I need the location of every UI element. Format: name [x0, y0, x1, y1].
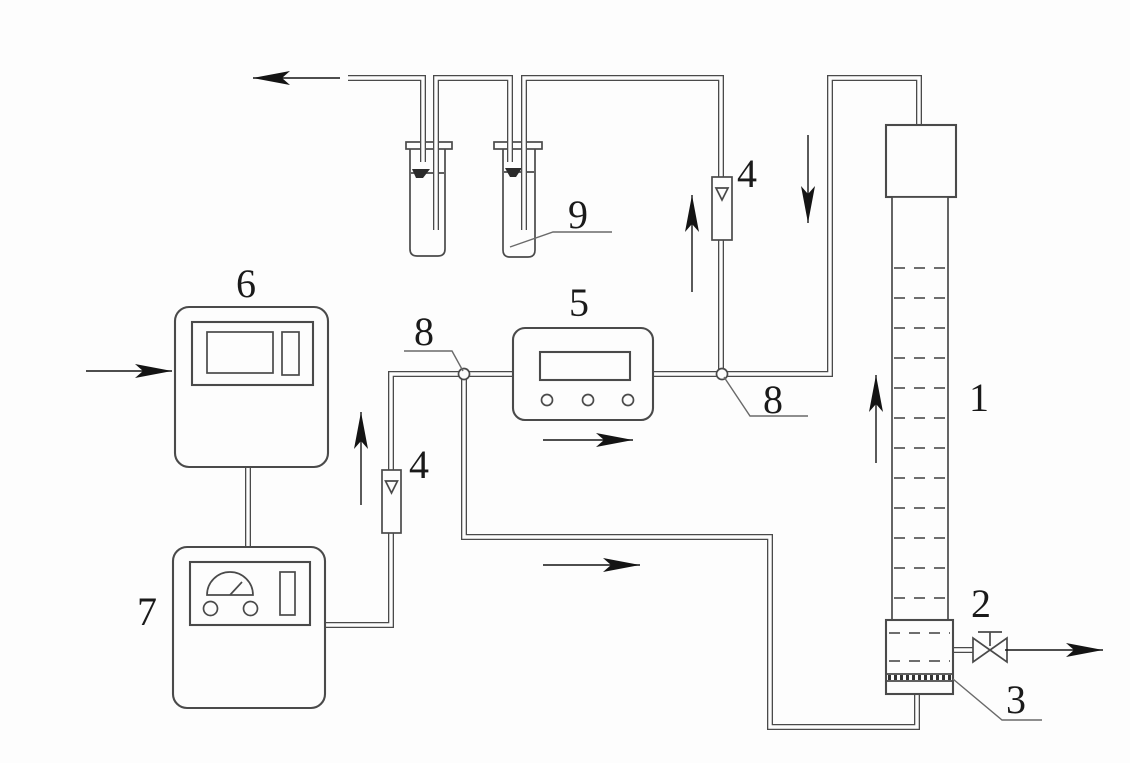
diagram-canvas: 1 2 3 4 4 5 6 7 8 8 9 — [0, 0, 1130, 763]
sieve-plate — [887, 674, 952, 681]
leader-3 — [953, 679, 1042, 720]
bottle-1-body — [410, 148, 445, 256]
bottle-1 — [406, 142, 452, 256]
bottle-1-stopper — [406, 142, 452, 149]
column-top-cap — [886, 125, 956, 197]
junction-right-node — [717, 369, 728, 380]
column-body — [892, 197, 948, 620]
instrument-bottom-box — [173, 547, 325, 708]
junction-left-node — [459, 369, 470, 380]
flowmeter-left — [382, 470, 401, 533]
flowmeter-right — [712, 177, 732, 240]
label-column: 1 — [969, 375, 989, 420]
bottle-2-stopper — [494, 142, 542, 149]
label-instrument-top: 6 — [236, 261, 256, 306]
schematic-diagram: 1 2 3 4 4 5 6 7 8 8 9 — [0, 0, 1130, 763]
analyzer-box — [513, 328, 653, 420]
label-column-base: 2 — [971, 581, 991, 626]
leader-9 — [510, 232, 612, 247]
label-junction-left: 8 — [414, 309, 434, 354]
bottle-2 — [494, 142, 542, 257]
pipe-bottle1-bottle2 — [436, 78, 510, 230]
label-flowmeter-left: 4 — [409, 442, 429, 487]
drain-valve — [973, 632, 1007, 662]
label-flowmeter-right: 4 — [737, 151, 757, 196]
column-base — [886, 620, 953, 694]
label-sampling-bottles: 9 — [568, 192, 588, 237]
instrument-top-box — [175, 307, 328, 467]
label-analyzer: 5 — [569, 280, 589, 325]
pipe-junction-column-top — [722, 78, 919, 374]
label-instrument-bottom: 7 — [137, 589, 157, 634]
pipe-junction-column-bottom — [464, 374, 917, 727]
absorption-column — [886, 125, 956, 694]
label-junction-right: 8 — [763, 377, 783, 422]
label-distributor-plate: 3 — [1006, 677, 1026, 722]
leader-8-left — [404, 351, 463, 371]
